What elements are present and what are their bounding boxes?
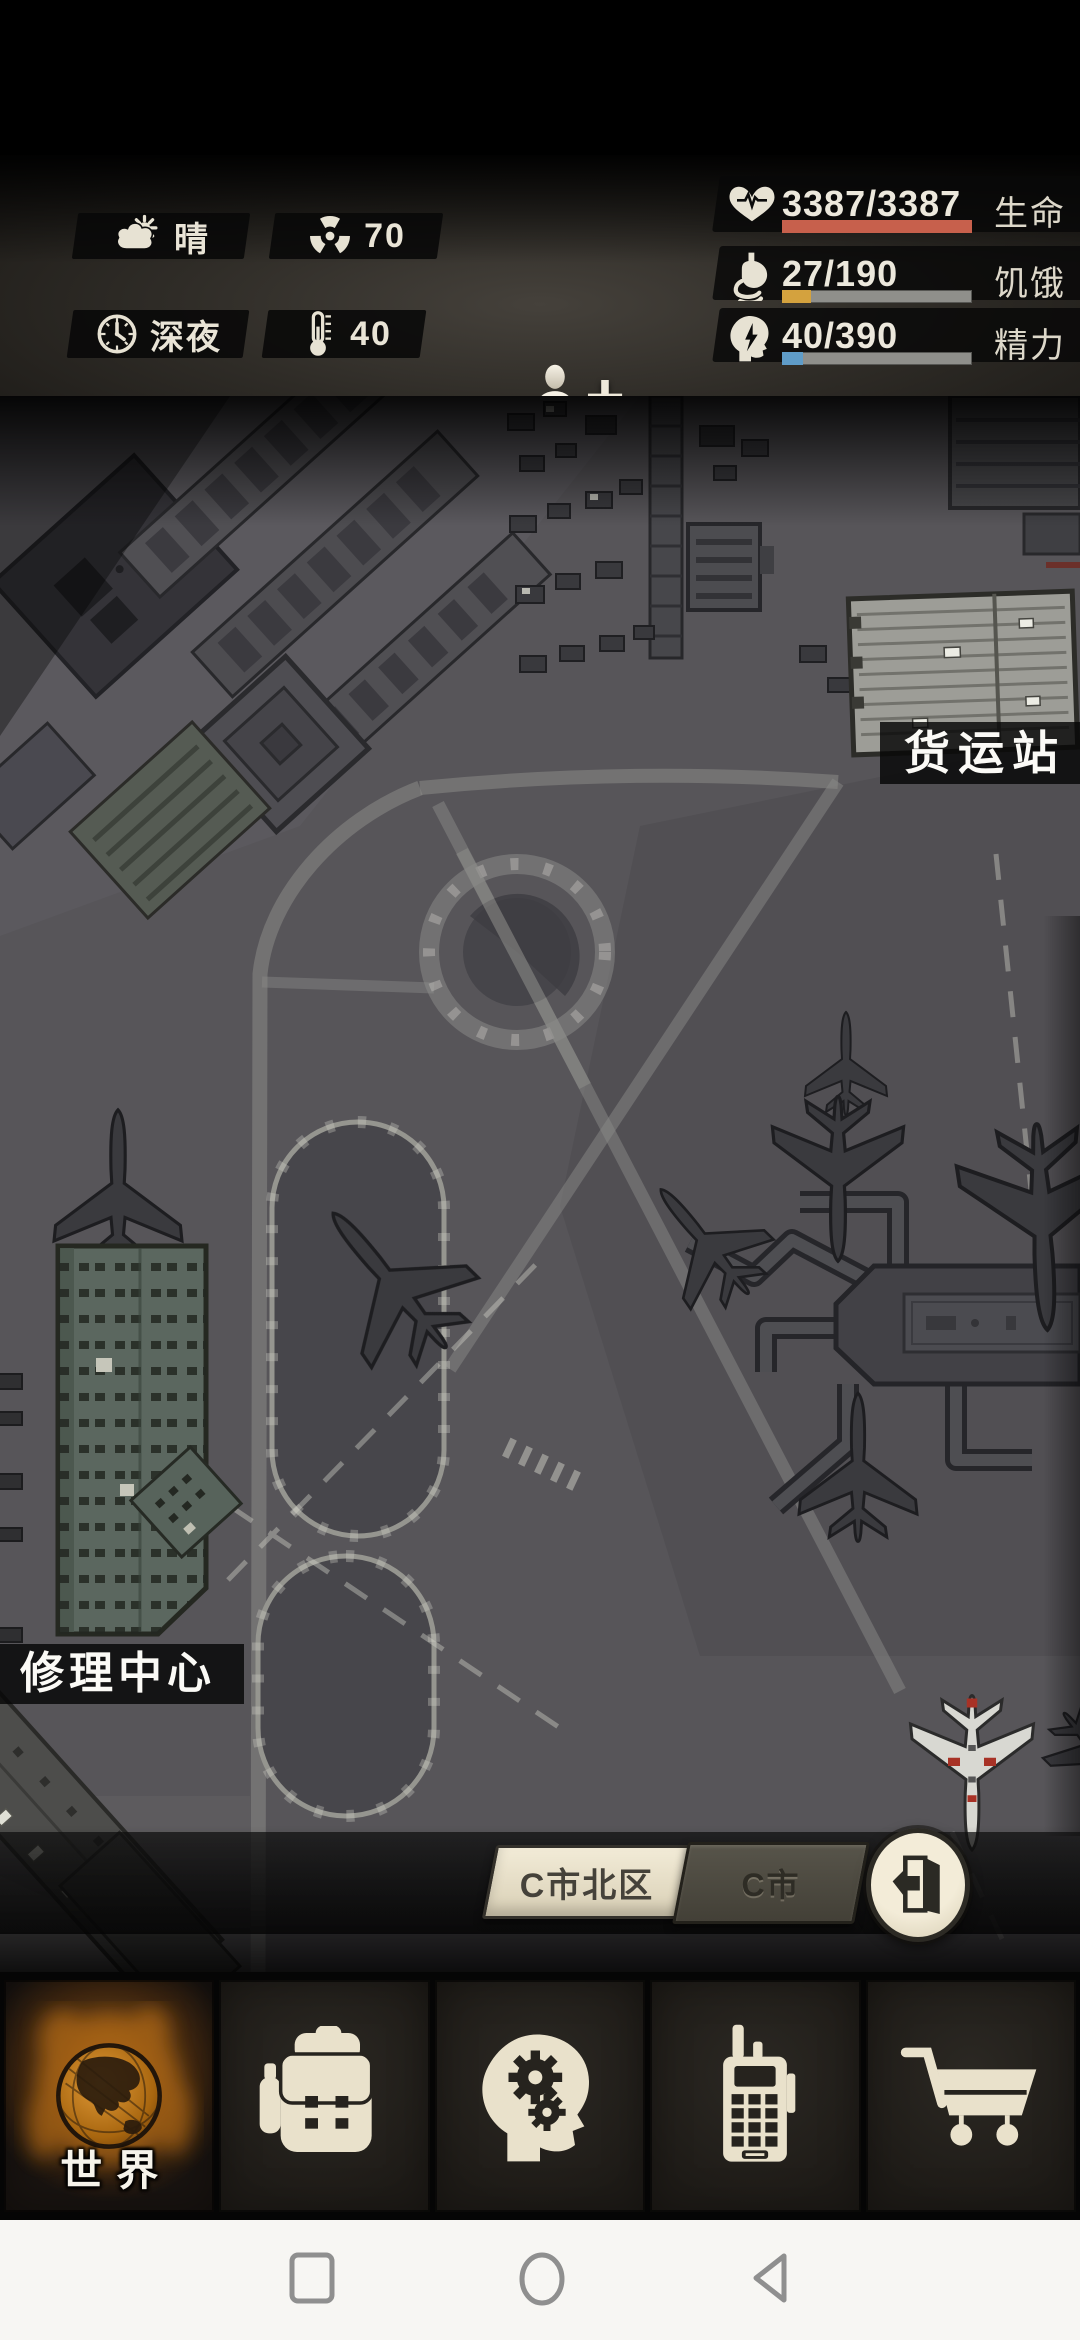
region-tab-current[interactable]: C市北区 bbox=[489, 1845, 685, 1919]
hunger-bar bbox=[782, 290, 972, 303]
hunger-stat-row: 27/190 饥饿 bbox=[716, 246, 1080, 300]
time-badge: 深夜 bbox=[70, 310, 246, 358]
energy-bar bbox=[782, 352, 972, 365]
health-bar bbox=[782, 220, 972, 233]
energy-label: 精力 bbox=[994, 318, 1066, 367]
home-button[interactable] bbox=[517, 2252, 567, 2306]
tab-market[interactable] bbox=[866, 1980, 1076, 2212]
radio-phone-icon bbox=[680, 2021, 830, 2171]
radiation-badge: 70 bbox=[272, 213, 440, 259]
energy-value: 40/390 bbox=[782, 315, 898, 357]
map-canvas[interactable] bbox=[0, 396, 1080, 1972]
exit-door-icon bbox=[889, 1852, 947, 1918]
exit-map-button[interactable] bbox=[866, 1828, 970, 1942]
hud-header: 晴 70 bbox=[0, 155, 1080, 396]
region-tab-parent[interactable]: C市 bbox=[680, 1842, 862, 1924]
android-status-bar bbox=[0, 0, 1080, 155]
stomach-icon bbox=[728, 251, 774, 301]
tab-world-label: 世界 bbox=[4, 2137, 214, 2198]
health-stat-row: 3387/3387 生命 bbox=[716, 176, 1080, 232]
region-tab-current-label: C市北区 bbox=[520, 1858, 655, 1907]
backpack-icon bbox=[255, 2026, 395, 2166]
poi-label-cargo-station[interactable]: 货运站 bbox=[880, 722, 1080, 784]
poi-label-repair-center[interactable]: 修理中心 bbox=[0, 1644, 244, 1704]
back-button[interactable] bbox=[746, 2252, 794, 2304]
health-value: 3387/3387 bbox=[782, 183, 961, 225]
weather-sun-cloud-icon bbox=[112, 213, 164, 259]
heart-pulse-icon bbox=[728, 181, 776, 227]
map-repair-center-building[interactable] bbox=[58, 1246, 206, 1634]
main-tab-bar: 世界 bbox=[0, 1972, 1080, 2220]
hunger-label: 饥饿 bbox=[994, 256, 1066, 305]
badge-bg bbox=[262, 310, 427, 358]
time-label: 深夜 bbox=[150, 310, 222, 359]
weather-badge: 晴 bbox=[75, 213, 247, 259]
world-map-view: 货运站 修理中心 C市北区 C市 bbox=[0, 396, 1080, 1972]
temperature-value: 40 bbox=[350, 315, 392, 354]
radiation-icon bbox=[306, 212, 354, 260]
badge-bg bbox=[269, 213, 443, 259]
region-tab-parent-label: C市 bbox=[741, 1860, 800, 1906]
shopping-cart-icon bbox=[896, 2026, 1046, 2166]
recents-button[interactable] bbox=[288, 2252, 336, 2304]
hunger-value: 27/190 bbox=[782, 253, 898, 295]
tab-backpack[interactable] bbox=[219, 1980, 429, 2212]
tab-skills[interactable] bbox=[435, 1980, 645, 2212]
head-lightning-icon bbox=[728, 313, 774, 363]
thermometer-icon bbox=[296, 309, 340, 359]
energy-stat-row: 40/390 精力 bbox=[716, 308, 1080, 362]
temperature-badge: 40 bbox=[265, 310, 423, 358]
health-label: 生命 bbox=[994, 186, 1066, 235]
game-screen: 晴 70 bbox=[0, 0, 1080, 2340]
tab-world[interactable]: 世界 bbox=[4, 1980, 214, 2212]
head-gears-icon bbox=[470, 2026, 610, 2166]
tab-radio[interactable] bbox=[650, 1980, 860, 2212]
radiation-value: 70 bbox=[364, 217, 406, 256]
weather-label: 晴 bbox=[174, 212, 210, 261]
android-nav-bar bbox=[0, 2220, 1080, 2340]
clock-icon bbox=[94, 311, 140, 357]
